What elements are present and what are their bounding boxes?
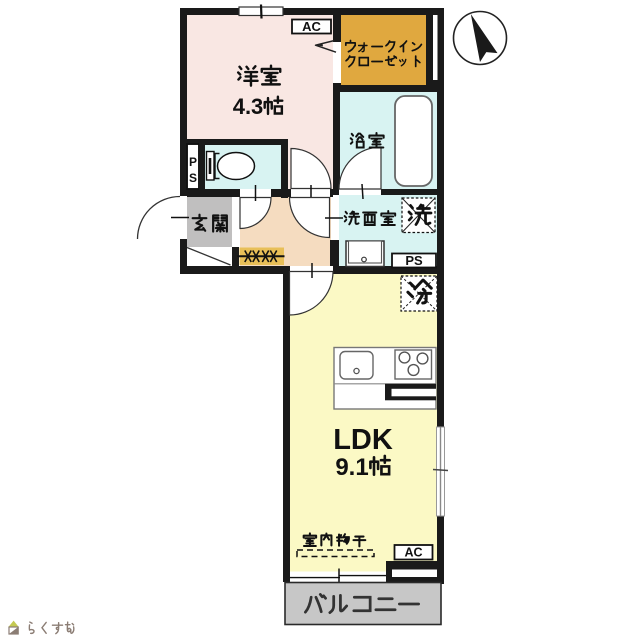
svg-text:9.1: 9.1 [335, 454, 368, 481]
svg-text:P: P [189, 155, 197, 169]
svg-text:PS: PS [405, 253, 423, 268]
svg-text:S: S [189, 171, 197, 185]
svg-text:AC: AC [404, 546, 422, 560]
svg-text:AC: AC [302, 19, 321, 34]
svg-text:4.3: 4.3 [233, 94, 264, 119]
svg-text:LDK: LDK [333, 424, 393, 456]
